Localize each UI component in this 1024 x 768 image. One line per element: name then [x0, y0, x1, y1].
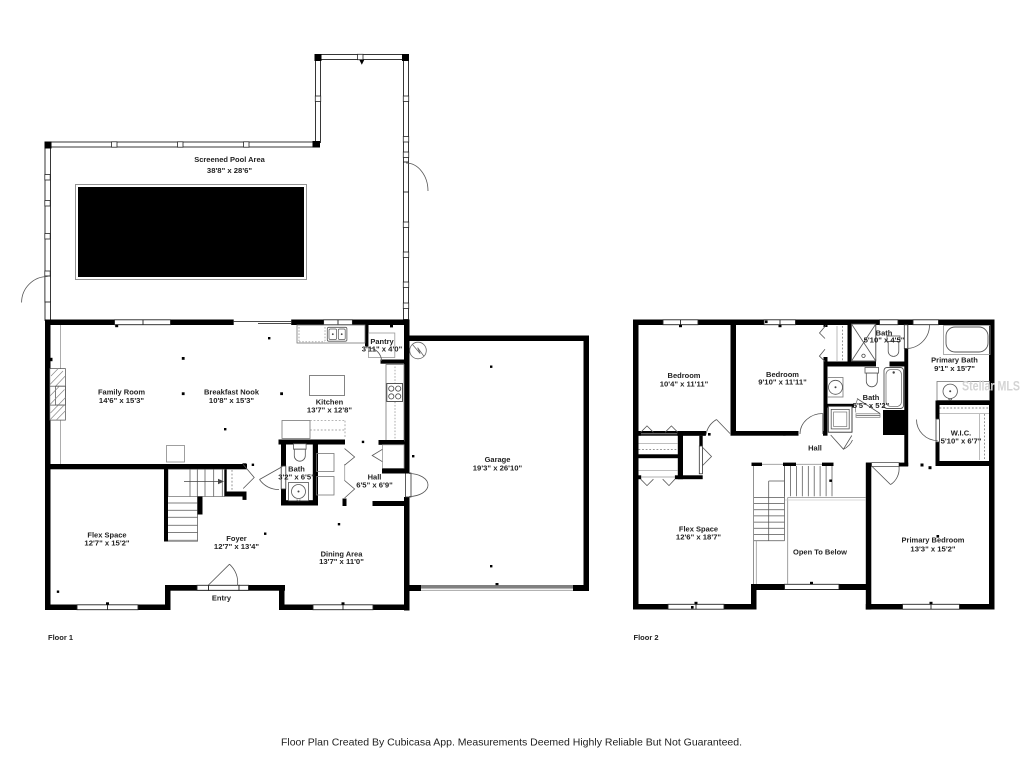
svg-text:Floor 2: Floor 2 [634, 633, 659, 642]
svg-text:14'6" x 15'3": 14'6" x 15'3" [99, 396, 145, 405]
svg-text:Stellar MLS: Stellar MLS [962, 379, 1020, 394]
svg-text:9'1" x 15'7": 9'1" x 15'7" [934, 364, 975, 373]
svg-text:10'8" x 15'3": 10'8" x 15'3" [209, 396, 255, 405]
svg-text:12'7" x 15'2": 12'7" x 15'2" [84, 538, 130, 547]
svg-text:Entry: Entry [212, 593, 232, 602]
svg-text:5'10" x 4'5": 5'10" x 4'5" [864, 336, 905, 345]
svg-text:Hall: Hall [808, 443, 822, 452]
svg-text:38'8" x 28'6": 38'8" x 28'6" [207, 166, 253, 175]
svg-text:13'7" x 11'0": 13'7" x 11'0" [319, 557, 364, 566]
svg-text:Primary Bedroom: Primary Bedroom [902, 536, 965, 545]
svg-text:13'3" x 15'2": 13'3" x 15'2" [910, 545, 956, 554]
svg-text:12'7" x 13'4": 12'7" x 13'4" [214, 542, 260, 551]
svg-text:13'7" x 12'8": 13'7" x 12'8" [307, 406, 353, 415]
svg-text:12'6" x 18'7": 12'6" x 18'7" [676, 533, 722, 542]
svg-text:19'3" x 26'10": 19'3" x 26'10" [473, 464, 523, 473]
svg-text:10'4" x 11'11": 10'4" x 11'11" [660, 380, 709, 389]
svg-text:5'5" x 5'2": 5'5" x 5'2" [853, 401, 890, 410]
svg-text:5'10" x 6'7": 5'10" x 6'7" [941, 437, 982, 446]
svg-text:Open To Below: Open To Below [793, 548, 847, 557]
svg-text:Floor Plan Created By Cubicasa: Floor Plan Created By Cubicasa App. Meas… [281, 737, 742, 749]
svg-text:6'5" x 6'9": 6'5" x 6'9" [356, 480, 393, 489]
svg-text:3'11" x 4'0": 3'11" x 4'0" [362, 345, 403, 354]
svg-text:3'2" x 6'5": 3'2" x 6'5" [278, 473, 315, 482]
svg-text:9'10" x 11'11": 9'10" x 11'11" [758, 378, 807, 387]
svg-text:Screened Pool Area: Screened Pool Area [194, 155, 265, 164]
svg-text:Floor 1: Floor 1 [48, 633, 73, 642]
